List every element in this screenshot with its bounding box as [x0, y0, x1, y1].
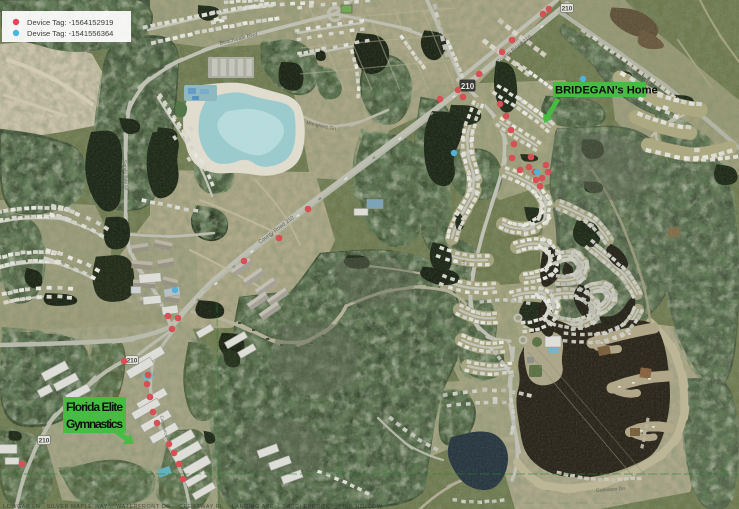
svg-text:Gymnastics: Gymnastics	[66, 417, 123, 431]
svg-text:Device Tag: -1564152919: Device Tag: -1564152919	[27, 18, 113, 27]
svg-text:Devise Tag: -1541556364: Devise Tag: -1541556364	[27, 29, 113, 38]
svg-text:Florida Elite: Florida Elite	[66, 400, 123, 414]
svg-text:BRIDEGAN’s Home: BRIDEGAN’s Home	[555, 85, 658, 97]
